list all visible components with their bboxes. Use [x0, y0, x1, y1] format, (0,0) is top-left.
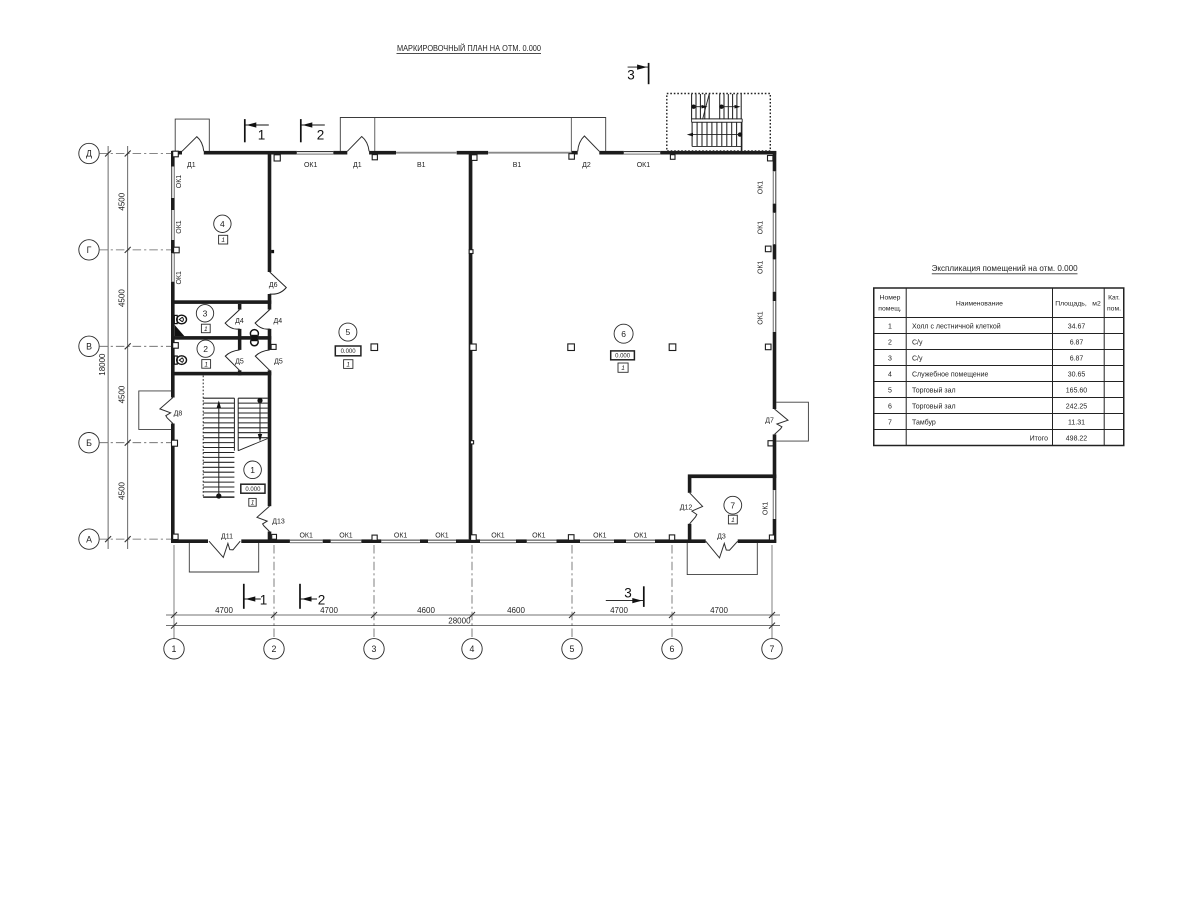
svg-text:6.87: 6.87	[1070, 355, 1084, 362]
svg-text:0.000: 0.000	[245, 487, 261, 493]
svg-text:Д12: Д12	[680, 505, 693, 512]
svg-text:1: 1	[172, 644, 177, 654]
svg-text:2: 2	[272, 644, 277, 654]
svg-text:3: 3	[624, 586, 632, 601]
svg-text:ОК1: ОК1	[532, 533, 546, 540]
svg-text:ОК1: ОК1	[757, 260, 764, 274]
svg-text:МАРКИРОВОЧНЫЙ ПЛАН НА ОТМ. 0.0: МАРКИРОВОЧНЫЙ ПЛАН НА ОТМ. 0.000	[397, 42, 541, 53]
svg-text:4700: 4700	[215, 606, 233, 615]
svg-text:Номер: Номер	[880, 295, 901, 302]
svg-text:Д8: Д8	[174, 411, 183, 418]
svg-text:Д13: Д13	[272, 519, 285, 526]
svg-text:7: 7	[770, 644, 775, 654]
svg-text:Д2: Д2	[582, 162, 591, 169]
svg-text:4500: 4500	[118, 192, 127, 210]
svg-text:28000: 28000	[448, 617, 471, 626]
svg-text:Д1: Д1	[353, 162, 362, 169]
svg-text:ОК1: ОК1	[299, 533, 313, 540]
svg-text:4700: 4700	[610, 606, 628, 615]
svg-text:1: 1	[250, 465, 255, 475]
svg-text:6: 6	[670, 644, 675, 654]
svg-text:5: 5	[346, 327, 351, 337]
svg-text:4500: 4500	[118, 385, 127, 403]
svg-text:1: 1	[346, 361, 350, 368]
svg-text:В1: В1	[513, 162, 522, 169]
svg-text:34.67: 34.67	[1068, 323, 1086, 330]
svg-text:1: 1	[731, 517, 735, 524]
svg-text:Д4: Д4	[235, 318, 244, 325]
svg-text:Г: Г	[87, 245, 92, 255]
svg-text:4500: 4500	[118, 481, 127, 499]
svg-text:Торговый зал: Торговый зал	[912, 402, 956, 410]
svg-text:11.31: 11.31	[1068, 419, 1085, 426]
svg-text:0.000: 0.000	[341, 349, 357, 355]
svg-text:4: 4	[888, 371, 892, 378]
svg-text:А: А	[86, 534, 92, 544]
svg-text:Холл с лестничной клеткой: Холл с лестничной клеткой	[912, 322, 1001, 330]
svg-text:6: 6	[888, 403, 892, 410]
svg-text:Экспликация помещений на отм.: Экспликация помещений на отм. 0.000	[932, 264, 1078, 273]
svg-text:Б: Б	[86, 438, 92, 448]
svg-text:Итого: Итого	[1030, 435, 1048, 442]
svg-text:ОК1: ОК1	[339, 533, 353, 540]
svg-text:2: 2	[317, 128, 325, 143]
svg-text:4: 4	[470, 644, 475, 654]
svg-text:1: 1	[258, 128, 266, 143]
svg-text:ОК1: ОК1	[304, 162, 318, 169]
svg-text:165.60: 165.60	[1066, 387, 1088, 394]
svg-text:Кат.: Кат.	[1108, 295, 1120, 302]
svg-text:6: 6	[621, 329, 626, 339]
svg-text:Тамбур: Тамбур	[912, 418, 936, 426]
svg-text:1: 1	[888, 323, 892, 330]
svg-text:4600: 4600	[507, 606, 525, 615]
svg-text:Д: Д	[86, 149, 92, 159]
svg-text:3: 3	[203, 308, 208, 318]
svg-text:Наименование: Наименование	[956, 301, 1003, 308]
svg-text:30.65: 30.65	[1068, 371, 1086, 378]
svg-text:1: 1	[221, 237, 225, 244]
svg-text:В1: В1	[417, 162, 426, 169]
svg-text:242.25: 242.25	[1066, 403, 1088, 410]
svg-text:ОК1: ОК1	[176, 271, 183, 285]
svg-text:ОК1: ОК1	[762, 502, 769, 516]
svg-text:4500: 4500	[118, 289, 127, 307]
svg-text:4700: 4700	[710, 606, 728, 615]
svg-text:Д5: Д5	[235, 359, 244, 366]
svg-text:пом.: пом.	[1107, 306, 1121, 313]
svg-text:Д11: Д11	[221, 533, 233, 540]
svg-text:2: 2	[203, 344, 208, 354]
svg-text:В: В	[86, 342, 92, 352]
svg-text:6.87: 6.87	[1070, 339, 1084, 346]
svg-text:ОК1: ОК1	[491, 533, 505, 540]
svg-text:ОК1: ОК1	[637, 162, 651, 169]
svg-text:1: 1	[204, 361, 208, 368]
svg-text:5: 5	[570, 644, 575, 654]
svg-text:Д5: Д5	[274, 359, 283, 366]
svg-text:2: 2	[888, 339, 892, 346]
svg-text:ОК1: ОК1	[634, 533, 648, 540]
svg-text:Д6: Д6	[269, 282, 278, 289]
svg-text:498.22: 498.22	[1066, 435, 1088, 442]
svg-text:5: 5	[888, 387, 892, 394]
svg-text:м2: м2	[1092, 301, 1101, 308]
svg-text:1: 1	[621, 365, 625, 372]
svg-text:Торговый зал: Торговый зал	[912, 386, 956, 394]
svg-text:ОК1: ОК1	[757, 221, 764, 235]
svg-text:1: 1	[251, 500, 255, 507]
svg-text:Д7: Д7	[765, 418, 774, 425]
svg-text:18000: 18000	[98, 353, 107, 376]
svg-text:1: 1	[204, 326, 208, 333]
svg-text:Д1: Д1	[187, 162, 196, 169]
svg-text:2: 2	[318, 593, 326, 608]
svg-text:3: 3	[627, 68, 635, 83]
svg-text:0.000: 0.000	[615, 354, 631, 360]
svg-text:4600: 4600	[417, 606, 435, 615]
svg-text:ОК1: ОК1	[757, 311, 764, 325]
svg-text:Д3: Д3	[717, 533, 726, 540]
svg-text:3: 3	[372, 644, 377, 654]
svg-text:ОК1: ОК1	[593, 533, 607, 540]
svg-text:ОК1: ОК1	[176, 220, 183, 234]
svg-text:ОК1: ОК1	[435, 533, 449, 540]
svg-text:ОК1: ОК1	[394, 533, 408, 540]
svg-text:3: 3	[888, 355, 892, 362]
svg-text:помещ.: помещ.	[878, 306, 902, 313]
svg-text:ОК1: ОК1	[757, 181, 764, 195]
svg-text:Д4: Д4	[273, 318, 282, 325]
svg-text:7: 7	[888, 419, 892, 426]
svg-text:С/у: С/у	[912, 339, 923, 346]
svg-text:4: 4	[220, 219, 225, 229]
svg-text:ОК1: ОК1	[176, 175, 183, 189]
svg-text:Служебное помещение: Служебное помещение	[912, 370, 989, 378]
svg-text:7: 7	[730, 500, 735, 510]
svg-text:Площадь,: Площадь,	[1055, 301, 1087, 308]
svg-text:1: 1	[260, 593, 268, 608]
svg-text:С/у: С/у	[912, 355, 923, 362]
